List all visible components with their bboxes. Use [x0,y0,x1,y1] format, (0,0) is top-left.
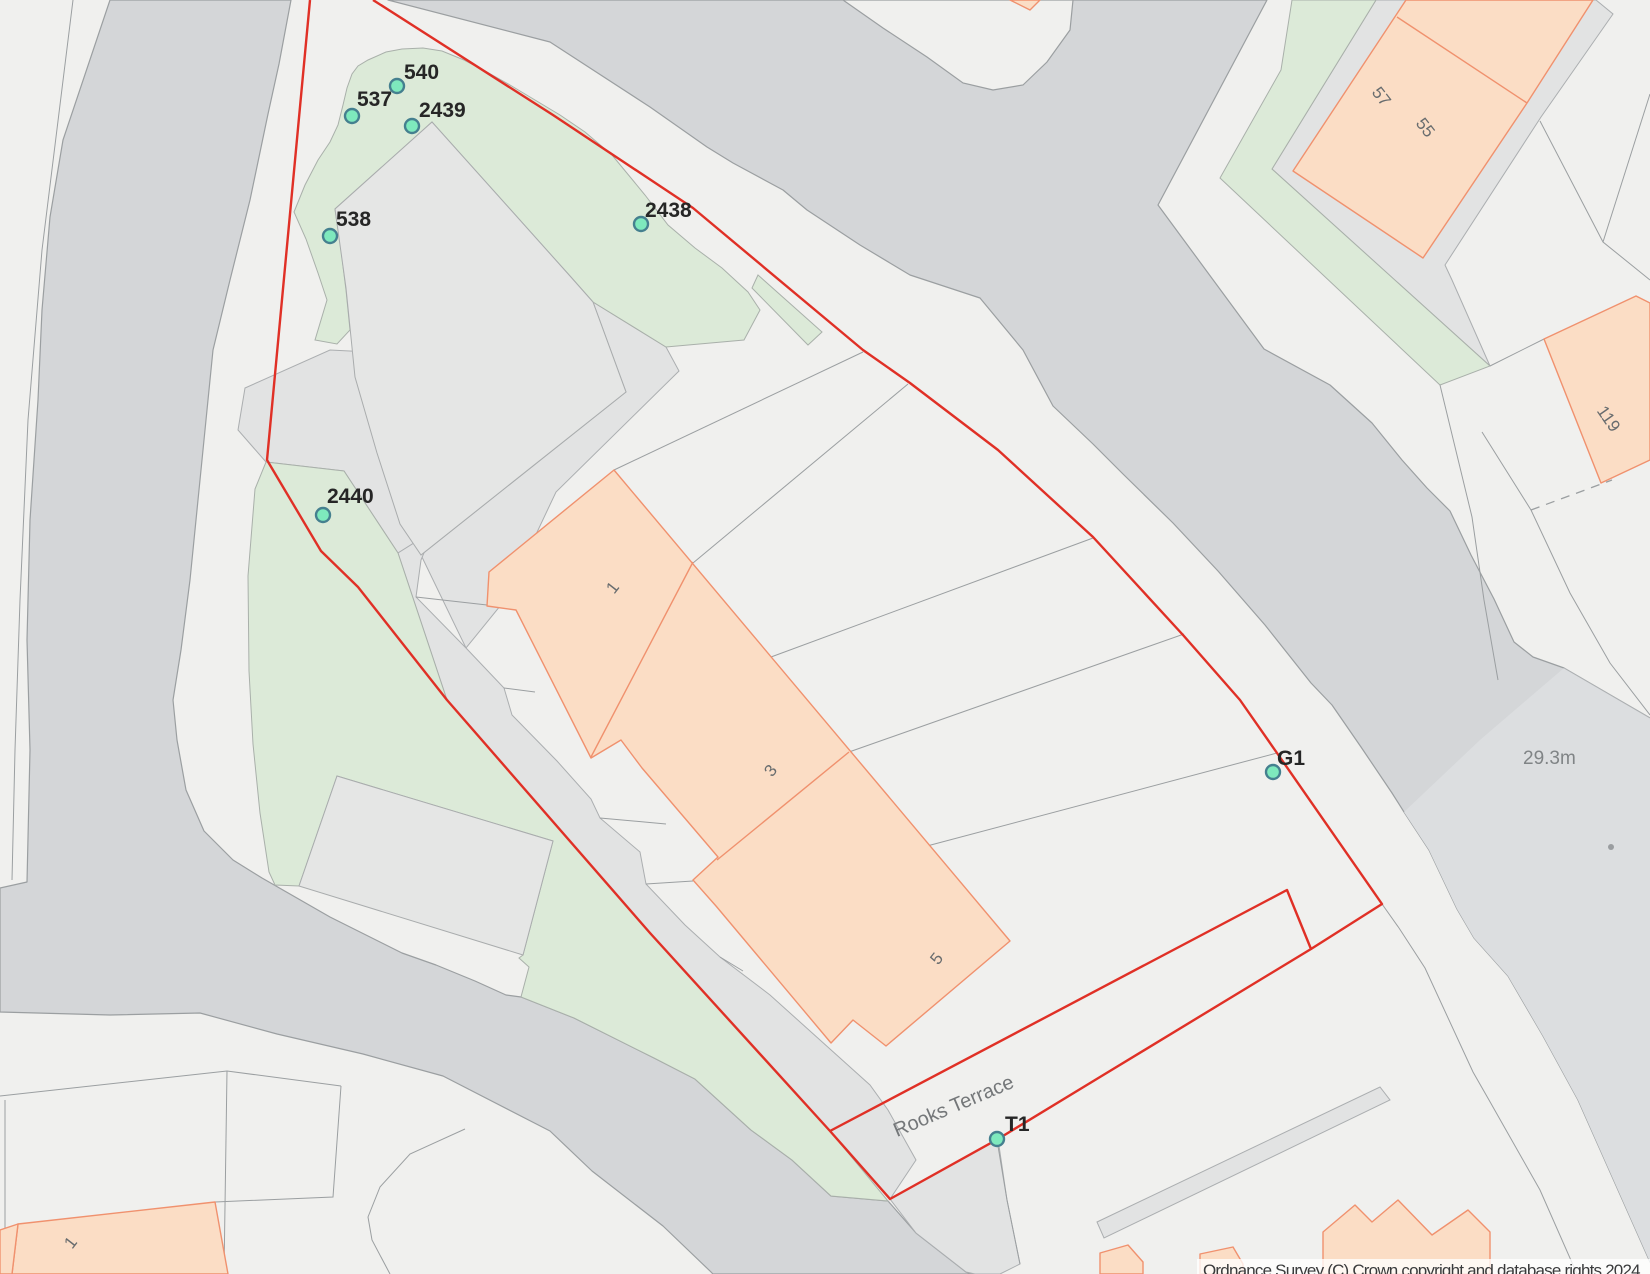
svg-text:29.3m: 29.3m [1523,748,1576,769]
svg-text:537: 537 [357,88,392,111]
svg-text:T1: T1 [1005,1113,1030,1136]
svg-text:538: 538 [336,208,371,231]
svg-text:540: 540 [404,61,439,84]
svg-text:G1: G1 [1277,747,1305,770]
svg-text:2439: 2439 [419,99,466,122]
svg-text:2438: 2438 [645,199,692,222]
svg-text:2440: 2440 [327,485,374,508]
svg-text:Ordnance Survey (C) Crown copy: Ordnance Survey (C) Crown copyright and … [1203,1261,1640,1274]
